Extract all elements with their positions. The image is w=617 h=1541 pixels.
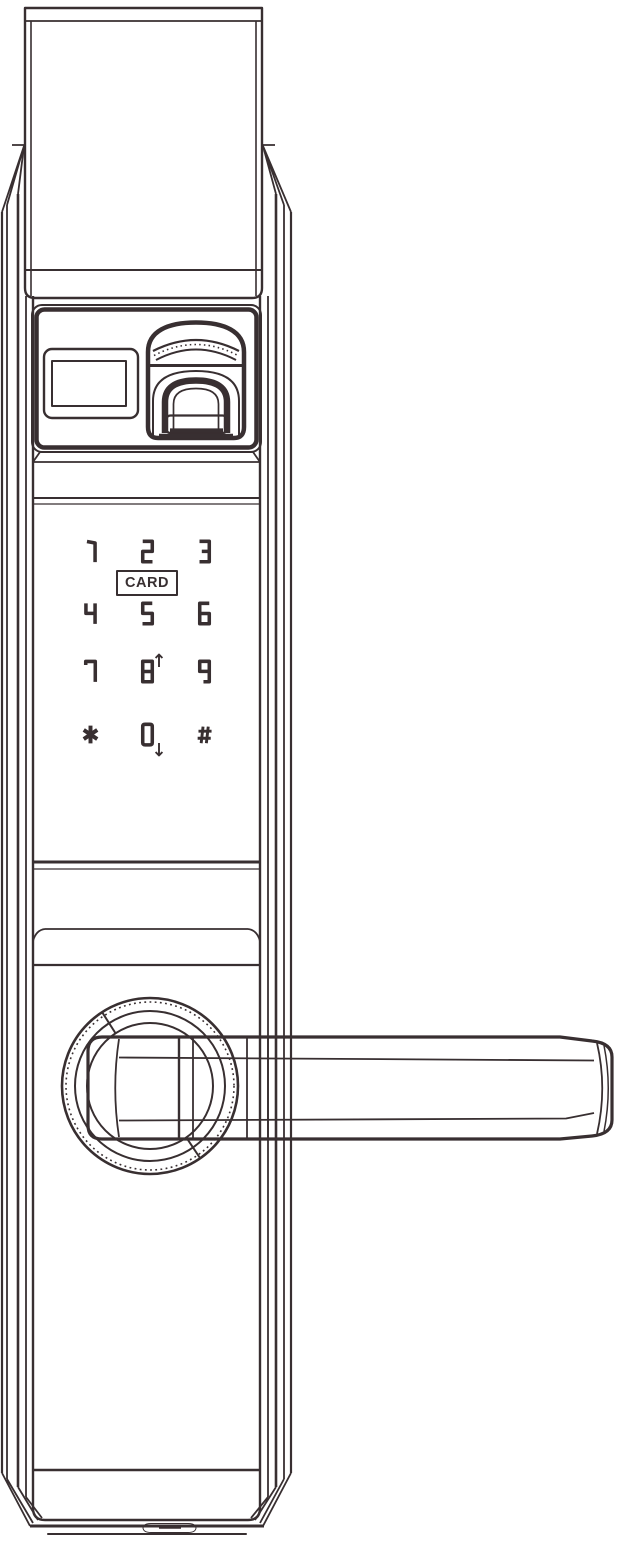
- key-glyph-1: [82, 538, 99, 565]
- key-8[interactable]: [125, 654, 169, 688]
- key-glyph-star: [82, 721, 99, 748]
- fingerprint-scanner[interactable]: [148, 323, 244, 439]
- key-7[interactable]: [68, 654, 112, 688]
- door-lock-drawing: CARD: [0, 0, 617, 1541]
- key-hash[interactable]: [182, 717, 226, 751]
- key-9[interactable]: [182, 654, 226, 688]
- key-glyph-9: [196, 658, 213, 685]
- down-arrow-icon: [154, 742, 164, 758]
- key-glyph-5: [139, 600, 156, 627]
- key-glyph-3: [196, 538, 213, 565]
- key-glyph-0: [139, 721, 156, 748]
- sensor-panel: [32, 305, 261, 452]
- key-glyph-6: [196, 600, 213, 627]
- key-glyph-4: [82, 600, 99, 627]
- card-label: CARD: [125, 575, 169, 591]
- key-4[interactable]: [68, 596, 112, 630]
- key-2[interactable]: [125, 534, 169, 568]
- key-3[interactable]: [182, 534, 226, 568]
- top-cap: [25, 8, 262, 298]
- up-arrow-icon: [154, 652, 164, 668]
- key-glyph-hash: [196, 721, 213, 748]
- key-6[interactable]: [182, 596, 226, 630]
- key-glyph-8: [139, 658, 156, 685]
- card-reader-zone[interactable]: CARD: [116, 570, 178, 596]
- key-1[interactable]: [68, 534, 112, 568]
- key-0[interactable]: [125, 717, 169, 751]
- key-star[interactable]: [68, 717, 112, 751]
- key-5[interactable]: [125, 596, 169, 630]
- key-glyph-7: [82, 658, 99, 685]
- lever-handle[interactable]: [88, 1037, 612, 1140]
- key-glyph-2: [139, 538, 156, 565]
- indicator-window: [44, 349, 138, 418]
- lock-line-art: [0, 0, 617, 1541]
